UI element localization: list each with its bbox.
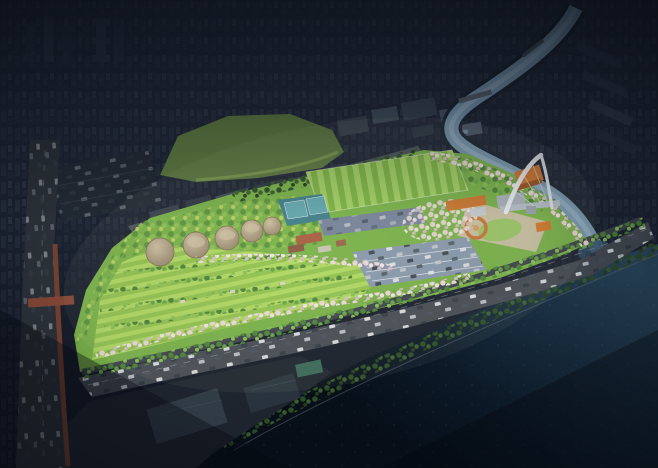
vignette xyxy=(0,0,658,468)
aerial-render-stage xyxy=(0,0,658,468)
park-aerial-rendering xyxy=(0,0,658,468)
